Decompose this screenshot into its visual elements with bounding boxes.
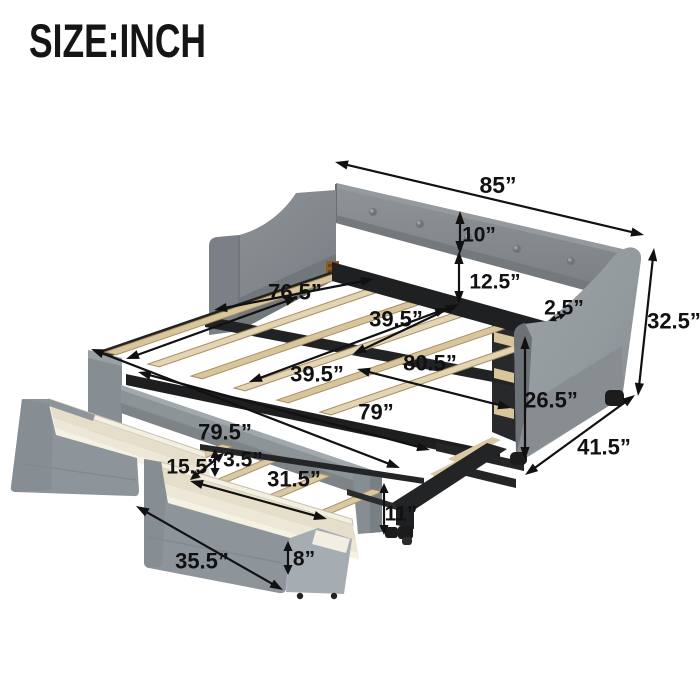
svg-text:10”: 10” <box>462 223 496 246</box>
svg-text:31.5”: 31.5” <box>267 467 321 492</box>
svg-text:8”: 8” <box>293 547 315 570</box>
svg-text:32.5”: 32.5” <box>647 309 700 334</box>
svg-text:80.5”: 80.5” <box>403 351 457 376</box>
svg-text:12.5”: 12.5” <box>469 270 520 293</box>
svg-text:41.5”: 41.5” <box>577 435 631 460</box>
svg-text:11”: 11” <box>385 502 418 525</box>
svg-text:39.5”: 39.5” <box>369 307 423 332</box>
svg-text:76.5”: 76.5” <box>268 280 322 305</box>
svg-text:26.5”: 26.5” <box>524 388 578 413</box>
svg-text:85”: 85” <box>479 172 516 198</box>
svg-text:2.5”: 2.5” <box>544 296 584 319</box>
svg-text:79.5”: 79.5” <box>198 420 252 445</box>
svg-text:35.5”: 35.5” <box>175 549 229 574</box>
svg-text:3.5”: 3.5” <box>223 448 263 471</box>
svg-text:79”: 79” <box>358 400 393 425</box>
svg-text:15.5”: 15.5” <box>166 455 217 478</box>
svg-text:SIZE:INCH: SIZE:INCH <box>29 14 206 67</box>
svg-text:39.5”: 39.5” <box>290 362 344 387</box>
